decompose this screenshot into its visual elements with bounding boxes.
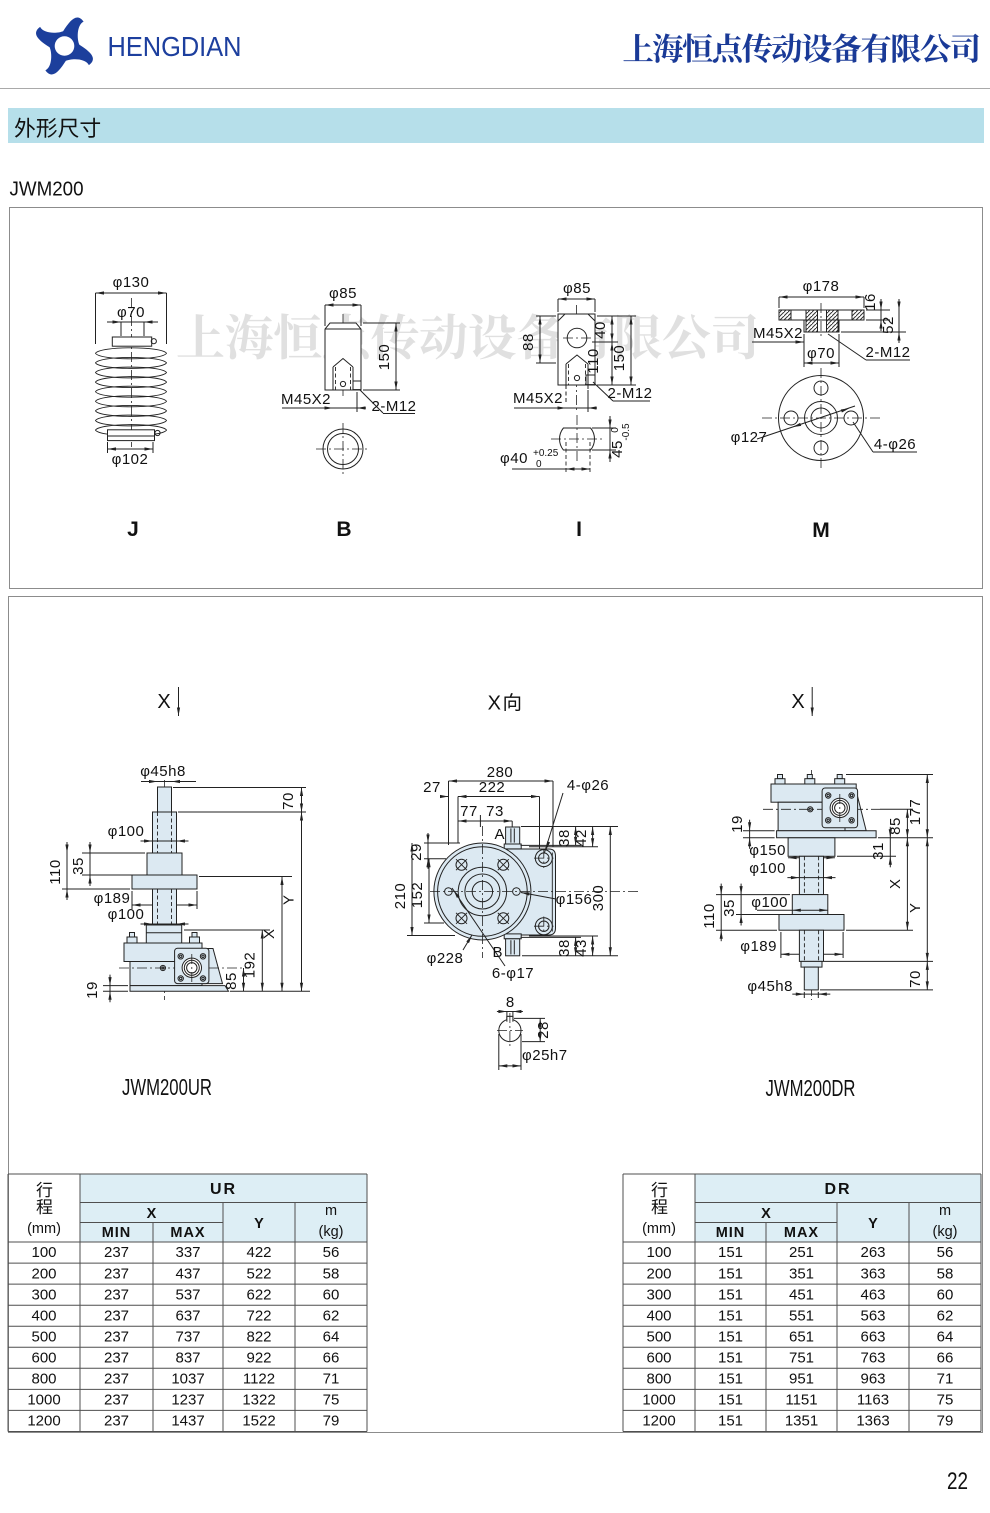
svg-text:922: 922 (246, 1350, 271, 1367)
svg-text:1437: 1437 (171, 1413, 204, 1430)
svg-text:822: 822 (246, 1328, 271, 1345)
svg-text:(mm): (mm) (27, 1221, 61, 1237)
svg-text:237: 237 (104, 1286, 129, 1303)
svg-text:600: 600 (646, 1350, 671, 1367)
svg-text:m: m (325, 1203, 337, 1219)
svg-text:MIN: MIN (102, 1225, 132, 1241)
svg-text:363: 363 (860, 1265, 885, 1282)
svg-text:66: 66 (937, 1350, 954, 1367)
svg-text:151: 151 (718, 1328, 743, 1345)
svg-text:237: 237 (104, 1328, 129, 1345)
svg-text:75: 75 (937, 1392, 954, 1409)
svg-text:722: 722 (246, 1307, 271, 1324)
svg-text:237: 237 (104, 1392, 129, 1409)
svg-text:622: 622 (246, 1286, 271, 1303)
svg-text:151: 151 (718, 1244, 743, 1261)
svg-text:56: 56 (323, 1244, 340, 1261)
svg-text:1122: 1122 (243, 1371, 275, 1388)
svg-text:X: X (761, 1206, 771, 1222)
svg-text:1200: 1200 (642, 1413, 675, 1430)
svg-text:437: 437 (175, 1265, 200, 1282)
svg-text:60: 60 (323, 1286, 340, 1303)
svg-text:300: 300 (646, 1286, 671, 1303)
svg-text:75: 75 (323, 1392, 340, 1409)
svg-text:651: 651 (789, 1328, 814, 1345)
svg-text:62: 62 (323, 1307, 340, 1324)
svg-text:337: 337 (175, 1244, 200, 1261)
svg-text:1200: 1200 (27, 1413, 60, 1430)
svg-text:79: 79 (937, 1413, 954, 1430)
svg-text:1351: 1351 (785, 1413, 818, 1430)
svg-text:DR: DR (824, 1181, 851, 1198)
svg-text:151: 151 (718, 1307, 743, 1324)
svg-text:1522: 1522 (242, 1413, 275, 1430)
svg-text:237: 237 (104, 1350, 129, 1367)
svg-text:60: 60 (937, 1286, 954, 1303)
svg-text:963: 963 (860, 1371, 885, 1388)
svg-text:71: 71 (937, 1371, 954, 1388)
svg-text:64: 64 (323, 1328, 340, 1345)
svg-text:751: 751 (789, 1350, 814, 1367)
svg-text:237: 237 (104, 1244, 129, 1261)
svg-text:79: 79 (323, 1413, 340, 1430)
svg-text:300: 300 (31, 1286, 56, 1303)
svg-text:200: 200 (646, 1265, 671, 1282)
svg-text:1322: 1322 (242, 1392, 275, 1409)
svg-text:1363: 1363 (856, 1413, 889, 1430)
svg-text:151: 151 (718, 1286, 743, 1303)
svg-text:151: 151 (718, 1371, 743, 1388)
svg-text:463: 463 (860, 1286, 885, 1303)
svg-text:UR: UR (210, 1181, 237, 1198)
svg-text:237: 237 (104, 1307, 129, 1324)
svg-text:1000: 1000 (27, 1392, 60, 1409)
svg-text:551: 551 (789, 1307, 814, 1324)
svg-text:1000: 1000 (642, 1392, 675, 1409)
svg-text:451: 451 (789, 1286, 814, 1303)
svg-text:237: 237 (104, 1413, 129, 1430)
svg-text:X: X (147, 1206, 157, 1222)
svg-text:1037: 1037 (171, 1371, 204, 1388)
svg-text:600: 600 (31, 1350, 56, 1367)
svg-text:351: 351 (789, 1265, 814, 1282)
svg-text:m: m (939, 1203, 951, 1219)
svg-text:58: 58 (937, 1265, 954, 1282)
svg-text:637: 637 (175, 1307, 200, 1324)
svg-text:MAX: MAX (170, 1225, 205, 1241)
svg-text:663: 663 (860, 1328, 885, 1345)
svg-text:800: 800 (31, 1371, 56, 1388)
svg-text:151: 151 (718, 1392, 743, 1409)
svg-text:151: 151 (718, 1350, 743, 1367)
svg-text:56: 56 (937, 1244, 954, 1261)
svg-text:737: 737 (175, 1328, 200, 1345)
svg-text:800: 800 (646, 1371, 671, 1388)
svg-text:151: 151 (718, 1265, 743, 1282)
svg-text:(kg): (kg) (319, 1224, 344, 1240)
svg-text:563: 563 (860, 1307, 885, 1324)
svg-text:64: 64 (937, 1328, 954, 1345)
svg-text:1237: 1237 (171, 1392, 204, 1409)
svg-text:100: 100 (646, 1244, 671, 1261)
svg-text:422: 422 (246, 1244, 271, 1261)
svg-text:237: 237 (104, 1371, 129, 1388)
svg-text:951: 951 (789, 1371, 814, 1388)
svg-text:58: 58 (323, 1265, 340, 1282)
svg-text:66: 66 (323, 1350, 340, 1367)
svg-text:763: 763 (860, 1350, 885, 1367)
svg-text:100: 100 (31, 1244, 56, 1261)
svg-text:237: 237 (104, 1265, 129, 1282)
svg-text:62: 62 (937, 1307, 954, 1324)
svg-text:71: 71 (323, 1371, 340, 1388)
svg-text:263: 263 (860, 1244, 885, 1261)
svg-text:22: 22 (947, 1468, 968, 1495)
svg-text:1163: 1163 (857, 1392, 889, 1409)
svg-text:MIN: MIN (716, 1225, 746, 1241)
svg-text:400: 400 (646, 1307, 671, 1324)
svg-text:MAX: MAX (784, 1225, 819, 1241)
svg-text:251: 251 (789, 1244, 814, 1261)
svg-text:500: 500 (31, 1328, 56, 1345)
svg-text:151: 151 (718, 1413, 743, 1430)
svg-text:1151: 1151 (785, 1392, 817, 1409)
svg-text:Y: Y (254, 1216, 264, 1232)
svg-text:(kg): (kg) (933, 1224, 958, 1240)
svg-text:Y: Y (868, 1216, 878, 1232)
svg-text:200: 200 (31, 1265, 56, 1282)
svg-text:837: 837 (175, 1350, 200, 1367)
svg-text:500: 500 (646, 1328, 671, 1345)
svg-text:537: 537 (175, 1286, 200, 1303)
svg-text:522: 522 (246, 1265, 271, 1282)
svg-text:(mm): (mm) (642, 1221, 676, 1237)
svg-text:400: 400 (31, 1307, 56, 1324)
